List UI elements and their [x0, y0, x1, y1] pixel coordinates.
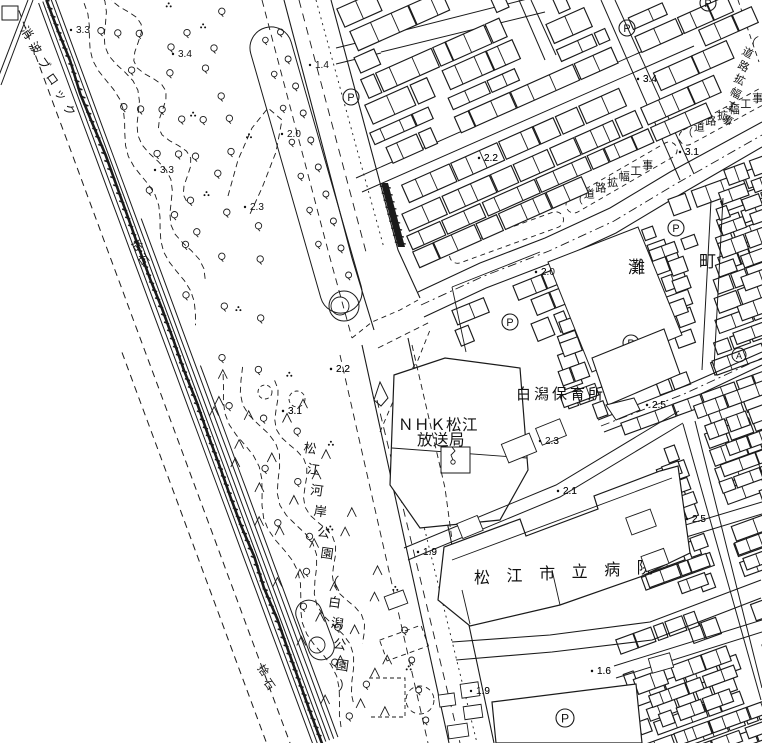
- svg-text:2.0: 2.0: [541, 267, 555, 278]
- svg-text:白: 白: [327, 594, 342, 611]
- svg-text:園: 園: [320, 545, 335, 562]
- svg-text:園: 園: [335, 657, 350, 674]
- svg-text:松: 松: [474, 569, 490, 587]
- svg-text:P: P: [672, 223, 679, 235]
- svg-text:町: 町: [699, 252, 716, 271]
- svg-text:松: 松: [303, 440, 318, 457]
- svg-text:3.1: 3.1: [288, 406, 302, 417]
- svg-text:2.3: 2.3: [545, 436, 559, 447]
- svg-text:P: P: [506, 317, 513, 329]
- svg-text:3.4: 3.4: [643, 74, 657, 85]
- svg-text:事: 事: [642, 159, 653, 172]
- svg-text:3.4: 3.4: [178, 49, 192, 60]
- svg-text:2.5: 2.5: [652, 400, 666, 411]
- svg-text:3.1: 3.1: [685, 147, 699, 158]
- svg-text:工: 工: [740, 99, 751, 111]
- svg-text:江: 江: [507, 567, 523, 585]
- svg-text:路: 路: [595, 182, 606, 195]
- svg-text:2.3: 2.3: [250, 202, 264, 213]
- svg-text:拡: 拡: [607, 175, 618, 189]
- svg-text:1.9: 1.9: [423, 547, 437, 558]
- svg-text:A: A: [736, 351, 742, 361]
- svg-text:2.5: 2.5: [692, 514, 706, 525]
- svg-text:幅: 幅: [619, 170, 630, 183]
- svg-text:1.4: 1.4: [315, 60, 329, 71]
- svg-text:立: 立: [572, 563, 588, 581]
- svg-text:放送局: 放送局: [417, 431, 465, 449]
- svg-text:2.2: 2.2: [484, 153, 498, 164]
- svg-text:灘: 灘: [628, 258, 645, 277]
- svg-text:2.0: 2.0: [287, 129, 301, 140]
- svg-text:P: P: [704, 0, 711, 10]
- svg-text:病: 病: [604, 561, 620, 579]
- svg-text:）: ）: [338, 678, 353, 695]
- svg-text:公: 公: [332, 636, 347, 653]
- svg-text:江: 江: [306, 461, 321, 478]
- svg-text:潟: 潟: [330, 615, 345, 632]
- svg-text:3.3: 3.3: [76, 25, 90, 36]
- svg-text:3.3: 3.3: [160, 165, 174, 176]
- svg-text:P: P: [623, 23, 630, 35]
- svg-text:1.6: 1.6: [597, 666, 611, 677]
- svg-text:P: P: [347, 92, 354, 104]
- svg-text:P: P: [561, 712, 569, 726]
- svg-text:（: （: [325, 573, 340, 590]
- svg-text:公: 公: [316, 524, 331, 541]
- svg-text:市: 市: [539, 565, 555, 583]
- svg-text:白潟保育所: 白潟保育所: [516, 386, 606, 403]
- svg-text:1.9: 1.9: [476, 686, 490, 697]
- svg-text:事: 事: [752, 92, 762, 105]
- svg-text:工: 工: [630, 166, 641, 178]
- svg-text:2.2: 2.2: [336, 364, 350, 375]
- svg-text:岸: 岸: [313, 503, 328, 520]
- svg-text:河: 河: [309, 482, 324, 499]
- svg-text:2.1: 2.1: [563, 486, 577, 497]
